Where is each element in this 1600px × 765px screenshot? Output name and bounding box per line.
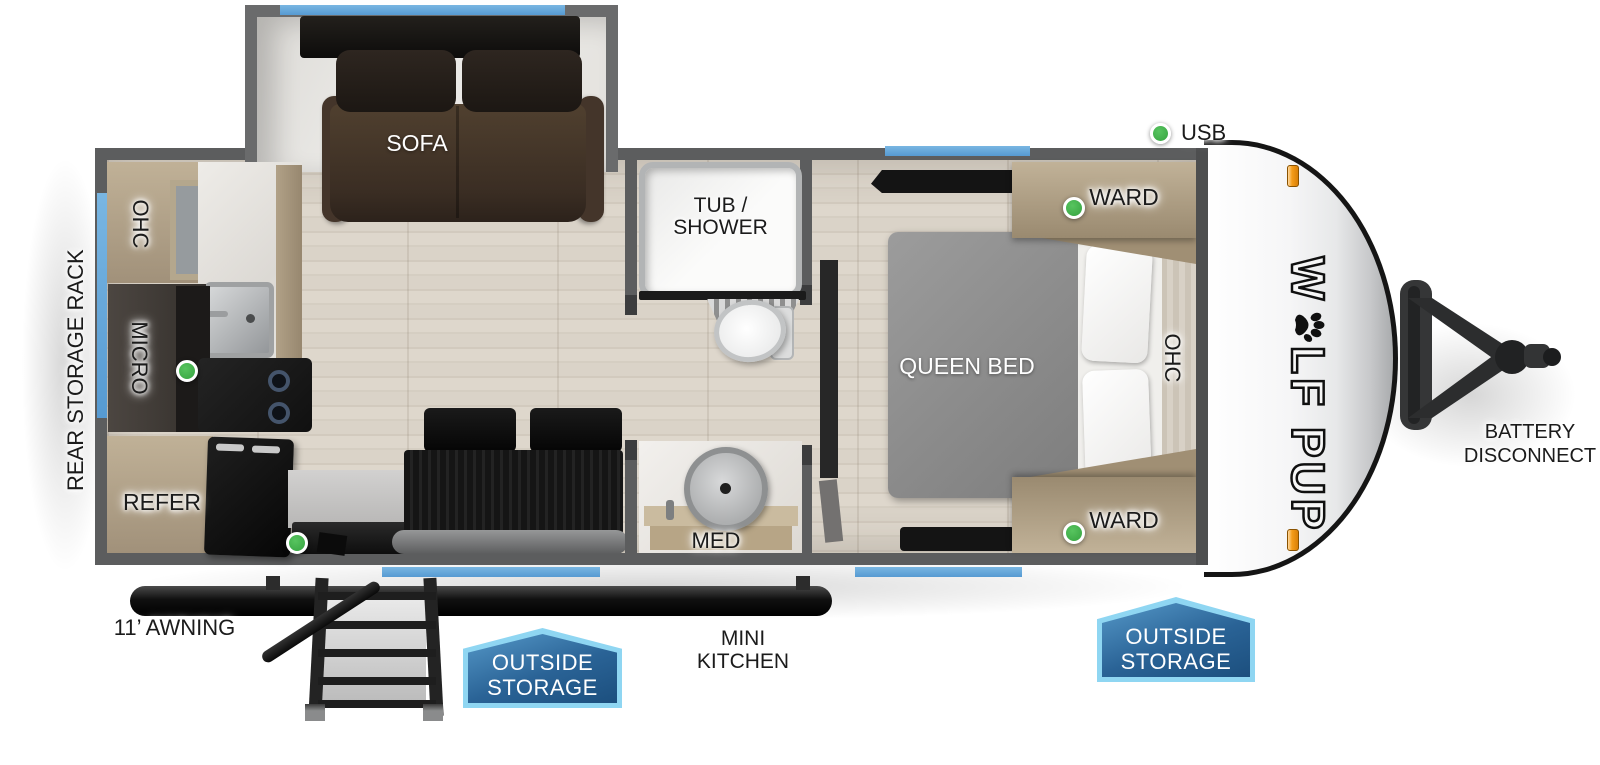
paw-print-icon <box>1291 308 1325 342</box>
shower-door-track <box>639 291 806 300</box>
cooktop <box>198 358 312 432</box>
pillow <box>1081 244 1153 363</box>
entry-steps-tread <box>318 592 436 600</box>
entry-steps-tread <box>318 677 436 685</box>
bedroom-ohc-label: OHC <box>1159 308 1185 408</box>
logo-text-start: W <box>1281 257 1335 304</box>
slideout-window <box>280 5 565 15</box>
entry-step-well <box>292 522 408 554</box>
clearance-light-icon <box>1287 165 1299 187</box>
window-strip <box>885 146 1030 156</box>
kitchen-sink <box>204 282 274 358</box>
awning-roller <box>130 586 832 616</box>
led-indicator-dot <box>286 532 308 554</box>
entry-steps-foot <box>423 704 443 721</box>
mini-kitchen-label-line2: KITCHEN <box>663 650 823 673</box>
sofa-seam <box>456 106 459 218</box>
dinette-bench <box>404 450 623 535</box>
badge-line2: STORAGE <box>1121 649 1232 674</box>
bedroom-shelf <box>900 527 1015 551</box>
usb-indicator-dot <box>1150 123 1171 144</box>
refer-label: REFER <box>112 489 212 516</box>
ward-top-label: WARD <box>1074 184 1174 211</box>
badge-line2: STORAGE <box>487 675 598 700</box>
bedroom-shelf <box>871 170 1027 193</box>
sofa-back-cushion <box>462 50 582 112</box>
window-strip <box>97 193 107 418</box>
door-jamb <box>625 440 637 460</box>
bench-headrest <box>424 408 516 452</box>
kitchen-ohc-label: OHC <box>127 174 153 274</box>
bench-headrest <box>530 408 622 452</box>
window-strip <box>855 567 1022 577</box>
usb-label: USB <box>1181 120 1241 146</box>
tub-label-line2: SHOWER <box>648 216 793 240</box>
fridge-handle-icon <box>252 446 280 454</box>
burner-icon <box>268 402 290 424</box>
sink-drain-icon <box>246 314 255 323</box>
fridge-handle-icon <box>216 444 244 452</box>
awning-bracket-icon <box>266 576 280 590</box>
awning-label: 11’ AWNING <box>92 615 257 641</box>
badge-line1: OUTSIDE <box>492 650 593 675</box>
ward-bottom-label: WARD <box>1074 507 1174 534</box>
sofa-label: SOFA <box>352 130 482 157</box>
badge-text: OUTSIDE STORAGE <box>463 628 622 708</box>
sofa-back-cushion <box>336 50 456 112</box>
sink-faucet-icon <box>666 500 674 520</box>
hitch-a-frame <box>1386 278 1566 438</box>
badge-line1: OUTSIDE <box>1125 624 1226 649</box>
led-indicator-dot <box>1063 522 1085 544</box>
battery-disconnect-label-line1: BATTERY <box>1432 420 1600 444</box>
micro-label: MICRO <box>126 298 152 418</box>
kitchen-side-cabinet <box>276 165 302 363</box>
mini-kitchen-label-line1: MINI <box>663 627 823 650</box>
burner-icon <box>268 370 290 392</box>
awning-bracket-icon <box>796 576 810 590</box>
led-indicator-dot <box>176 360 198 382</box>
refrigerator <box>204 437 294 558</box>
floorplan-canvas: SOFA OHC MICRO REFER TUB / SHOWER MED <box>0 0 1600 765</box>
queen-bed-label: QUEEN BED <box>887 353 1047 380</box>
front-wall <box>1196 148 1208 565</box>
wolf-pup-logo: W LF PUP <box>1278 225 1338 565</box>
entry-steps-tread <box>318 700 436 708</box>
bath-wall <box>625 160 637 315</box>
rear-storage-rack-label: REAR STORAGE RACK <box>63 281 89 491</box>
entry-steps-tread <box>318 621 436 629</box>
led-indicator-dot <box>1063 197 1085 219</box>
tub-label-line1: TUB / <box>648 194 793 218</box>
outside-storage-badge: OUTSIDE STORAGE <box>463 628 622 708</box>
bedroom-tv <box>820 260 838 478</box>
battery-disconnect-label-line2: DISCONNECT <box>1432 444 1600 468</box>
entry-landing <box>288 470 406 528</box>
entry-door-strip <box>382 567 600 577</box>
entry-steps-foot <box>305 704 325 721</box>
door-jamb <box>625 295 637 315</box>
sink-drain-icon <box>720 483 731 494</box>
logo-text-end: LF PUP <box>1281 346 1335 534</box>
bench-base <box>392 530 628 554</box>
entry-step-block <box>317 532 348 556</box>
med-cabinet-label: MED <box>666 528 766 554</box>
entry-steps-tread <box>318 649 436 657</box>
